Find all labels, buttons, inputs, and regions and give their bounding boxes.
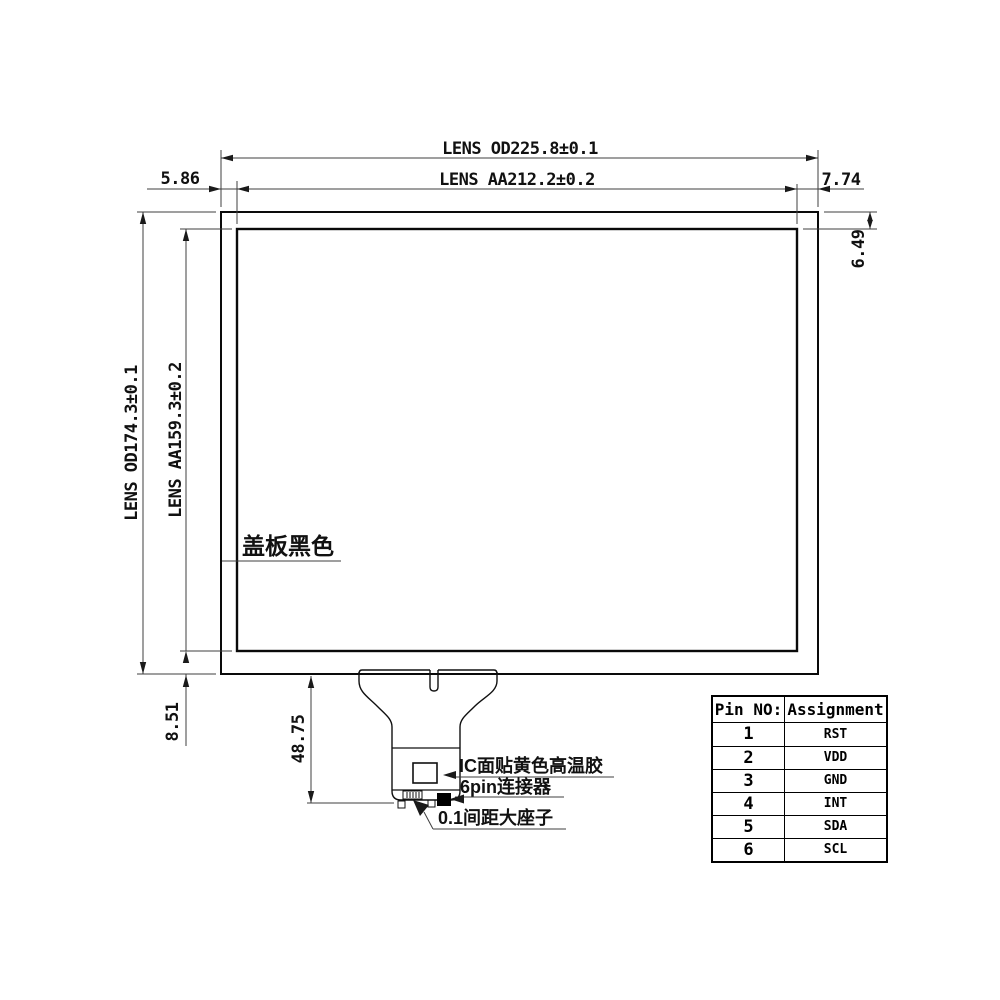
dim-top-margin-right-text: 6.49 [849,229,869,268]
dim-bottom-margin-text: 8.51 [163,702,183,741]
dim-right-margin-text: 7.74 [822,170,861,190]
pin-assignment-cell: VDD [785,747,886,769]
dim-od-height-text: LENS OD174.3±0.1 [122,365,142,521]
ic-chip [413,763,437,783]
pin-table-row: 2 VDD [713,746,886,769]
cover-black-label: 盖板黑色 [242,533,334,559]
socket-6pin-body [437,793,451,806]
dim-aa-width-text: LENS AA212.2±0.2 [439,170,595,190]
pin-number-cell: 2 [713,747,785,769]
callout-cover-black: 盖板黑色 [222,533,341,561]
callout-pitch-socket: 0.1间距大座子 [413,800,566,829]
pin-assignment-table: Pin NO: Assignment 1 RST 2 VDD 3 GND 4 I… [711,695,888,863]
pin-number-cell: 5 [713,816,785,838]
touch-panel-drawing: LENS OD225.8±0.1 LENS AA212.2±0.2 5.86 7… [0,0,1000,1000]
pin-assignment-cell: INT [785,793,886,815]
dim-aa-height-text: LENS AA159.3±0.2 [166,362,186,518]
ic-tape-label: IC面贴黄色高温胶 [459,755,603,776]
pin-number-cell: 4 [713,793,785,815]
pin-table-row: 1 RST [713,722,886,745]
pin-number-cell: 1 [713,723,785,745]
pin-number-cell: 3 [713,770,785,792]
pin-no-header-cell: Pin NO: [713,697,785,722]
dim-right-top-margin: 6.49 [803,212,877,268]
callout-6pin-connector: 6pin连接器 [450,776,564,804]
pin-table-row: 4 INT [713,792,886,815]
assignment-header-cell: Assignment [785,697,886,722]
pin-assignment-cell: GND [785,770,886,792]
dim-tail-length-text: 48.75 [289,714,309,763]
tail-tab-right [428,800,435,807]
pin-assignment-cell: SDA [785,816,886,838]
pin-assignment-cell: SCL [785,839,886,861]
callout-ic-tape: IC面贴黄色高温胶 [443,755,614,779]
pin-number-cell: 6 [713,839,785,861]
pin-contacts [407,792,419,798]
pin-table-row: 3 GND [713,769,886,792]
dim-od-width-text: LENS OD225.8±0.1 [442,139,598,159]
lens-outline [221,212,818,674]
pin-table-header-row: Pin NO: Assignment [713,697,886,722]
dim-left-margin-text: 5.86 [161,169,200,189]
connector-6pin-label: 6pin连接器 [460,776,552,797]
lens-od-rect [221,212,818,674]
dim-left: LENS OD174.3±0.1 LENS AA159.3±0.2 8.51 [122,212,232,746]
lens-aa-rect [237,229,797,651]
pin-table-row: 6 SCL [713,838,886,861]
pitch-socket-label: 0.1间距大座子 [438,807,553,828]
tail-tab-left [398,801,405,808]
dim-tail-length: 48.75 [289,676,394,803]
pin-assignment-cell: RST [785,723,886,745]
pin-table-row: 5 SDA [713,815,886,838]
